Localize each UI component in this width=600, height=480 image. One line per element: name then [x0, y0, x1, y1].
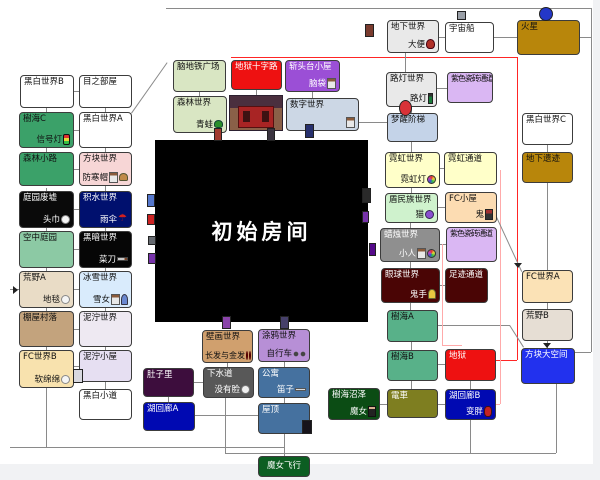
mud-hut-sprite-icon [73, 369, 83, 383]
node-purple-tile-passage-1: 紫色瓷砖通道 [447, 72, 493, 103]
connector-line [547, 183, 548, 270]
node-label: 公寓 [259, 368, 309, 379]
node-witch-flight: 魔女飞行 [258, 456, 310, 477]
node-label: 火星 [518, 21, 579, 32]
node-underground-ruins: 地下遗迹 [522, 152, 573, 183]
connector-line [591, 8, 592, 352]
node-fc-hut: FC小屋鬼 [445, 192, 497, 223]
node-label: 盾民族世界 [386, 194, 437, 205]
node-label: 涂鸦世界 [259, 330, 309, 341]
connector-line [438, 364, 445, 365]
connector-line [195, 415, 258, 416]
node-label: 梦醒阶梯 [388, 114, 437, 125]
node-label: 黑暗世界 [80, 232, 131, 243]
node-block-space: 方块大空间 [521, 348, 575, 384]
node-label: 蜡烛世界 [381, 229, 439, 240]
node-label: 足迹通道 [446, 269, 487, 280]
node-label: 地狱 [446, 350, 495, 361]
node-item: 霓虹灯 [388, 173, 436, 185]
node-lamp-world: 路灯世界路灯 [386, 72, 437, 107]
nexus-door-number-icon [305, 124, 314, 138]
node-label: 脑地铁广场 [174, 61, 225, 72]
node-apartment: 公寓笛子 [258, 367, 310, 398]
connector-line-diagonal [131, 62, 168, 114]
node-label: 黑白世界B [21, 76, 73, 87]
door-red-icon [147, 214, 155, 225]
ball-icon [427, 249, 436, 258]
connector-line [442, 244, 443, 345]
bed-icon [111, 294, 120, 305]
node-label: 空中庭园 [20, 232, 73, 243]
connector-line [411, 342, 412, 350]
knife-icon [117, 257, 128, 261]
node-mars: 火星 [517, 20, 580, 55]
rug-icon [61, 295, 70, 304]
node-belly: 肚子里 [143, 368, 194, 397]
neon-icon [427, 175, 436, 184]
node-jukai-swamp: 樹海沼泽魔女 [328, 388, 380, 420]
node-spaceship: 宇宙船 [445, 22, 494, 53]
connector-line [225, 398, 226, 453]
node-label: 棚屋村落 [20, 312, 73, 323]
node-item: 鬼手 [384, 288, 436, 300]
connector-line [437, 88, 447, 89]
node-label: 湖回廊A [144, 403, 194, 414]
cat-icon [425, 210, 434, 219]
connector-line [442, 345, 462, 346]
node-label: 魔女飞行 [267, 462, 301, 471]
node-block-world: 方块世界防寒帽 [79, 152, 132, 186]
node-mural-world: 壁画世界长发与金发 [202, 330, 253, 363]
connector-line [470, 420, 471, 453]
node-label: 霓虹世界 [386, 153, 439, 164]
node-mud-hut: 泥泞小屋 [79, 350, 132, 382]
bike-icon [293, 349, 306, 357]
connector-line [556, 384, 557, 453]
node-label: 眼球世界 [382, 269, 439, 280]
underground-door-icon [365, 24, 374, 37]
node-lake-corridor-b: 湖回廊B变胖 [445, 389, 496, 420]
nexus-door-red-icon [214, 128, 222, 141]
node-item: 菜刀 [82, 253, 128, 265]
lamp-icon [428, 93, 433, 104]
node-label: 地下世界 [388, 21, 438, 32]
connector-line [359, 122, 387, 123]
bed-icon [346, 117, 355, 128]
node-item: 自行车 [261, 347, 306, 359]
nexus-rug [238, 106, 273, 128]
node-blackwhite-a: 黑白世界A [79, 112, 132, 148]
node-graffiti-world: 涂鸦世界自行车 [258, 329, 310, 362]
connector-line [438, 404, 445, 405]
connector-line [496, 404, 500, 405]
node-blackwhite-b: 黑白世界B [20, 75, 74, 108]
node-wilderness-a: 荒野A地毯 [19, 271, 74, 308]
node-train: 電車 [387, 389, 438, 418]
bed-icon [327, 78, 336, 89]
connector-line [411, 142, 412, 152]
node-label: 紫色瓷砖通道 [447, 228, 496, 239]
node-blackwhite-c: 黑白世界C [522, 113, 573, 145]
mars-visitor-icon [539, 7, 553, 21]
connector-line [410, 303, 411, 310]
node-label: 樹海A [388, 311, 437, 322]
connector-line [105, 382, 106, 389]
connector-line [470, 381, 471, 389]
noface-icon [241, 385, 250, 394]
bed-icon [417, 248, 426, 259]
node-label: 积水世界 [80, 192, 131, 203]
node-garden-ruins: 庭园废墟头巾 [19, 191, 74, 228]
node-sky-garden: 空中庭园 [19, 231, 74, 268]
node-label: 庭园废墟 [20, 192, 73, 203]
world-map-diagram: 初始房间 黑白世界B樹海C信号灯森林小路庭园废墟头巾空中庭园荒野A地毯棚屋村落F… [0, 0, 600, 480]
towel-icon [61, 215, 70, 224]
node-item: 大便 [390, 38, 435, 50]
connector-line [411, 381, 412, 389]
node-blackwhite-path: 黑白小道 [79, 389, 132, 420]
node-label: 紫色瓷砖通道 [448, 73, 492, 84]
node-item: 笛子 [261, 383, 306, 395]
node-label: 方块世界 [80, 153, 131, 164]
node-label: 森林世界 [174, 97, 226, 108]
witch-icon [368, 406, 376, 417]
node-label: 壁画世界 [203, 331, 252, 342]
page-margin-right [593, 0, 600, 480]
node-label: 荒野B [523, 310, 572, 321]
connector-line [380, 404, 387, 405]
nexus-room-image [229, 95, 283, 131]
nexus-room: 初始房间 [155, 140, 368, 322]
flute-icon [295, 388, 306, 391]
node-label: 黑白小道 [80, 390, 131, 401]
rooftop-cat-icon [302, 420, 312, 434]
connector-line [438, 207, 445, 208]
node-dream-stairs: 梦醒阶梯 [387, 113, 438, 142]
node-item [289, 117, 355, 128]
node-forest-path: 森林小路 [19, 152, 74, 186]
connector-line [284, 434, 285, 456]
node-label: 泥泞世界 [80, 312, 131, 323]
node-fc-world-b: FC世界B软绵绵 [19, 350, 74, 388]
node-hut-village: 棚屋村落 [19, 311, 74, 347]
node-label: FC世界B [20, 351, 73, 362]
node-item: 魔女 [331, 405, 376, 417]
person-icon [121, 294, 128, 305]
node-label: FC小屋 [446, 193, 496, 204]
node-neon-passage: 霓虹通道 [444, 152, 497, 185]
arrowhead-icon [514, 263, 522, 268]
node-item: 小人 [383, 247, 436, 259]
node-label: 黑白世界A [80, 113, 131, 124]
umbrella-icon [118, 214, 128, 224]
face-icon [249, 351, 251, 360]
node-shield-tribe-world: 盾民族世界猫 [385, 193, 438, 223]
node-label: 下水道 [204, 368, 253, 379]
fat-icon [484, 406, 492, 417]
node-item: 脑袋 [288, 77, 336, 89]
node-jukai-c: 樹海C信号灯 [19, 112, 74, 148]
connector-line [231, 57, 517, 58]
node-item: 雨伞 [82, 213, 128, 225]
node-hell-crossroad: 地狱十字路 [231, 60, 282, 90]
node-label: 宇宙船 [446, 23, 493, 34]
node-label: 目之部屋 [80, 76, 131, 87]
door-candle-icon [362, 188, 371, 203]
node-jukai-b: 樹海B [387, 350, 438, 381]
node-fc-world-a: FC世界A [522, 270, 573, 303]
blob-icon [61, 375, 70, 384]
node-label: 屋顶 [259, 404, 309, 415]
connector-line [405, 53, 406, 72]
node-label: 冰雪世界 [80, 272, 131, 283]
node-underground-world: 地下世界大便 [387, 20, 439, 53]
node-item: 猫 [388, 208, 434, 220]
connector-line [194, 382, 203, 383]
node-label: 電車 [388, 390, 437, 401]
node-label: 湖回廊B [446, 390, 495, 401]
demon-icon [485, 209, 493, 220]
nexus-label: 初始房间 [212, 216, 312, 246]
stoplight-icon [63, 134, 70, 145]
nexus-door-dark-icon [267, 128, 275, 141]
connector-line [225, 453, 556, 454]
poop-icon [426, 39, 435, 49]
node-item: 长发与金发 [205, 350, 251, 361]
node-label: 路灯世界 [387, 73, 436, 84]
arrowhead-icon [13, 286, 18, 294]
connector-line [500, 170, 501, 404]
node-jukai-a: 樹海A [387, 310, 438, 342]
node-label: 数字世界 [287, 99, 358, 110]
node-eye-room: 目之部屋 [79, 75, 132, 108]
node-label: 樹海B [388, 351, 437, 362]
connector-line [166, 8, 591, 9]
node-mud-world: 泥泞世界 [79, 311, 132, 347]
node-item: 信号灯 [22, 133, 70, 145]
node-neon-world: 霓虹世界霓虹灯 [385, 152, 440, 188]
node-label: 肚子里 [144, 369, 193, 380]
node-item: 变胖 [448, 405, 492, 417]
node-label: 樹海C [20, 113, 73, 124]
connector-line [10, 447, 284, 448]
node-label: 黑白世界C [523, 114, 572, 125]
hand-icon [428, 289, 436, 299]
node-label: 樹海沼泽 [329, 389, 379, 400]
node-label: 荒野A [20, 272, 73, 283]
hat-icon [119, 173, 128, 181]
node-label: 泥泞小屋 [80, 351, 131, 362]
node-eyeball-world: 眼球世界鬼手 [381, 268, 440, 303]
door-deep-purple-icon [369, 243, 376, 256]
node-sewer: 下水道没有脸 [203, 367, 254, 398]
node-number-world: 数字世界 [286, 98, 359, 131]
node-purple-tile-passage-2: 紫色瓷砖通道 [446, 227, 497, 262]
connector-line [575, 352, 591, 353]
node-wilderness-b: 荒野B [522, 309, 573, 341]
node-item: 防寒帽 [82, 171, 128, 183]
node-guillotine-hut: 斩头台小屋脑袋 [285, 60, 340, 92]
arrowhead-icon [543, 343, 551, 348]
connector-line [547, 145, 548, 152]
node-hell: 地狱 [445, 349, 496, 381]
connector-line [580, 37, 591, 38]
node-item: 雪女 [82, 293, 128, 305]
node-label: 地狱十字路 [232, 61, 281, 72]
mural-door-icon [222, 316, 231, 329]
balloon-icon [399, 100, 412, 116]
frog-icon [214, 120, 223, 128]
node-label: 霓虹通道 [445, 153, 496, 164]
door-purple-icon [148, 253, 156, 264]
connector-line [517, 57, 518, 360]
node-puddle-world: 积水世界雨伞 [79, 191, 132, 228]
node-candle-world: 蜡烛世界小人 [380, 228, 440, 262]
node-item: 头巾 [22, 213, 70, 225]
node-item: 鬼 [448, 208, 493, 220]
door-violet-icon [362, 211, 369, 223]
spaceship-top-icon [457, 11, 466, 20]
door-gray-icon [148, 236, 156, 245]
node-label: 斩头台小屋 [286, 61, 339, 72]
node-brain-plaza: 脑地铁广场 [173, 60, 226, 92]
node-label: 地下遗迹 [523, 153, 572, 164]
node-snow-world: 冰雪世界雪女 [79, 271, 132, 308]
node-item: 路灯 [389, 92, 433, 104]
node-dark-world: 黑暗世界菜刀 [79, 231, 132, 268]
node-item: 没有脸 [206, 383, 250, 395]
node-item: 软绵绵 [22, 373, 70, 385]
node-item: 地毯 [22, 293, 70, 305]
graffiti-door-icon [280, 316, 289, 329]
face-icon [246, 351, 248, 360]
bed-icon [109, 172, 118, 183]
node-lake-corridor-a: 湖回廊A [143, 402, 195, 431]
node-label: FC世界A [523, 271, 572, 282]
node-label: 方块大空间 [522, 349, 574, 360]
door-bed-icon [147, 194, 155, 207]
connector-line [46, 388, 47, 447]
node-footprint-passage: 足迹通道 [445, 268, 488, 303]
node-label: 森林小路 [20, 153, 73, 164]
connector-line [494, 37, 517, 38]
